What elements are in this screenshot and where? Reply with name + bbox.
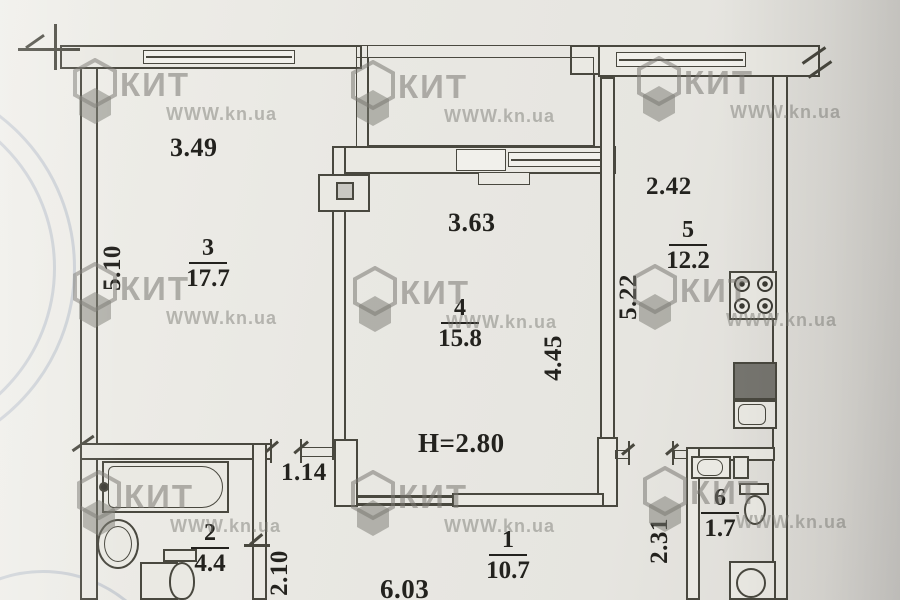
kit-site: WWW.kn.ua (444, 516, 555, 537)
kit-wordmark: КИТ (124, 478, 194, 516)
kit-wordmark: КИТ (690, 474, 760, 512)
watermark: КИТ WWW.kn.ua (72, 58, 272, 138)
wall-kitchen-left (600, 77, 615, 440)
room2-area: 4.4 (186, 549, 234, 577)
dim-hall-door: 1.14 (281, 459, 327, 487)
watermark: КИТ WWW.kn.ua (352, 266, 552, 346)
kit-logo-icon (352, 266, 398, 340)
kit-logo-icon (72, 262, 118, 336)
floor-plan-scan: 3 17.7 4 15.8 5 12.2 1 10.7 2 4.4 6 1.7 … (0, 0, 900, 600)
watermark: КИТ WWW.kn.ua (350, 60, 550, 140)
watermark: КИТ WWW.kn.ua (636, 56, 836, 136)
washing-machine-drum (736, 568, 766, 598)
kit-site: WWW.kn.ua (444, 106, 555, 127)
tick-top-left-v (54, 24, 57, 70)
dim-room4-width: 3.63 (448, 208, 496, 238)
kit-site: WWW.kn.ua (166, 308, 277, 329)
watermark: КИТ WWW.kn.ua (72, 262, 272, 342)
tick-top-left-slash (25, 34, 45, 49)
dim-bath-height: 2.10 (266, 543, 292, 600)
room1-area: 10.7 (478, 556, 538, 584)
kitchen-sink-bowl (738, 404, 766, 425)
dim-hall-width: 6.03 (380, 574, 429, 600)
kit-logo-icon (642, 466, 688, 540)
kit-site: WWW.kn.ua (446, 312, 557, 333)
kit-wordmark: КИТ (398, 478, 468, 516)
kit-wordmark: КИТ (120, 66, 190, 104)
kit-logo-icon (636, 56, 682, 130)
dim-kitchen-width: 2.42 (646, 173, 692, 201)
kit-logo-icon (76, 470, 122, 544)
utility-shaft-inner (336, 182, 354, 200)
door-bath-jamb-left (270, 439, 272, 463)
balcony-door-threshold (478, 172, 530, 185)
window-room4-midline (511, 159, 607, 161)
kit-site: WWW.kn.ua (170, 516, 281, 537)
watermark: КИТ WWW.kn.ua (350, 470, 550, 550)
kit-site: WWW.kn.ua (730, 102, 841, 123)
dim-ceiling-height: H=2.80 (418, 428, 505, 459)
kit-wordmark: КИТ (680, 272, 750, 310)
kit-wordmark: КИТ (398, 68, 468, 106)
kit-logo-icon (72, 58, 118, 132)
room5-number: 5 (669, 218, 707, 246)
watermark: КИТ WWW.kn.ua (76, 470, 276, 550)
kit-logo-icon (632, 264, 678, 338)
wall-room3-bottom (80, 443, 272, 460)
kit-site: WWW.kn.ua (736, 512, 847, 533)
kit-wordmark: КИТ (684, 64, 754, 102)
kit-wordmark: КИТ (120, 270, 190, 308)
watermark: КИТ WWW.kn.ua (642, 466, 842, 546)
watermark: КИТ WWW.kn.ua (632, 264, 832, 344)
kit-wordmark: КИТ (400, 274, 470, 312)
wall-room3-bottom-thin (300, 447, 334, 457)
kit-logo-icon (350, 60, 396, 134)
kit-site: WWW.kn.ua (726, 310, 837, 331)
room3-number: 3 (189, 236, 227, 264)
kit-logo-icon (350, 470, 396, 544)
kitchen-counter (733, 362, 777, 400)
kit-site: WWW.kn.ua (166, 104, 277, 125)
balcony-door-sill (456, 149, 506, 171)
